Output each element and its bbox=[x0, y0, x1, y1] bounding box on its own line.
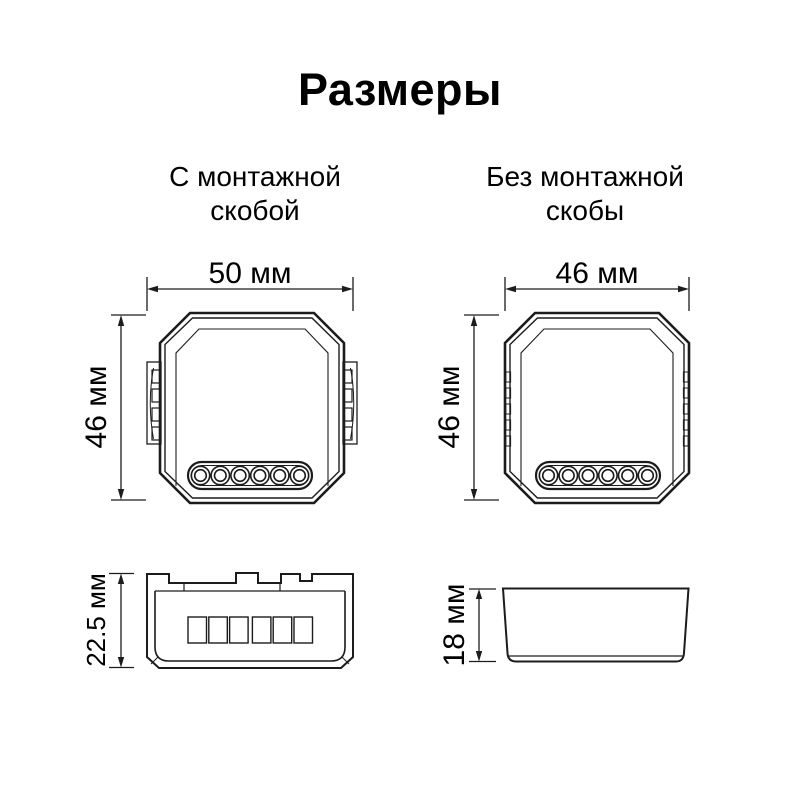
column-heading-without-bracket: Без монтажной скобы bbox=[430, 160, 740, 227]
width-dimension-label: 50 мм bbox=[209, 257, 292, 290]
side-view-with-bracket: 22.5 мм bbox=[70, 555, 380, 690]
height-dimension: 46 мм bbox=[80, 315, 146, 500]
height-dimension-label: 46 мм bbox=[80, 366, 113, 449]
front-view-without-bracket: 46 мм 46 мм bbox=[430, 245, 720, 520]
front-view-with-bracket: 50 мм 46 мм bbox=[70, 245, 380, 520]
height-dimension: 46 мм bbox=[433, 315, 499, 500]
terminal-slots bbox=[188, 617, 313, 643]
depth-dimension: 18 мм bbox=[438, 584, 496, 667]
depth-dimension-label: 22.5 мм bbox=[81, 573, 111, 667]
terminal-block bbox=[536, 462, 660, 489]
device-side-outline bbox=[503, 589, 689, 662]
depth-dimension: 22.5 мм bbox=[81, 573, 134, 667]
device-side-outline bbox=[147, 573, 353, 668]
dimensions-diagram: Размеры С монтажной скобой Без монтажной… bbox=[0, 0, 800, 800]
width-dimension: 46 мм bbox=[505, 257, 689, 311]
page-title: Размеры bbox=[0, 64, 800, 116]
side-view-without-bracket: 18 мм bbox=[430, 555, 720, 690]
column-heading-with-bracket: С монтажной скобой bbox=[100, 160, 410, 227]
width-dimension-label: 46 мм bbox=[556, 257, 639, 290]
terminal-block bbox=[188, 462, 312, 489]
height-dimension-label: 46 мм bbox=[433, 366, 466, 449]
width-dimension: 50 мм bbox=[147, 257, 353, 311]
depth-dimension-label: 18 мм bbox=[438, 584, 471, 667]
